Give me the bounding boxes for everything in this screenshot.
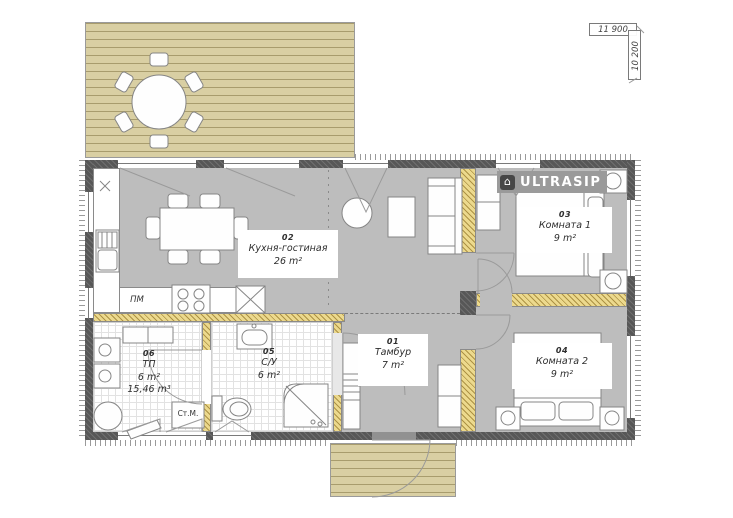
door-opening-tp (202, 350, 211, 404)
terrace-deck (85, 22, 355, 158)
floor-plan-canvas: 11 900 10 200 ⌂ ULTRASIP 02 Кухня-гостин… (0, 0, 733, 518)
window-bottom-tp (118, 432, 206, 440)
room-name: Тамбур (358, 347, 428, 359)
brand-logo: ⌂ ULTRASIP (497, 171, 607, 193)
dishwasher-label: ПМ (120, 295, 154, 305)
house-icon: ⌂ (500, 175, 515, 190)
wall-hatch-right (635, 160, 641, 440)
room-name: С/У (240, 357, 298, 369)
room-label-kitchen-living: 02 Кухня-гостиная 26 m² (238, 230, 338, 278)
door-opening-corridor (460, 253, 476, 291)
entrance-door-opening (372, 432, 416, 440)
door-opening-room1 (480, 293, 512, 307)
window-bottom-bathroom (213, 432, 251, 440)
wall-hatch-bottom-right (456, 440, 635, 446)
room-area: 6 m² (106, 372, 192, 384)
room-volume: 15,46 m³ (106, 384, 192, 396)
kitchen-counter-left (93, 168, 120, 313)
room-name: Комната 1 (518, 220, 612, 232)
room-number: 01 (358, 337, 428, 347)
window-top-1 (118, 160, 196, 168)
dimension-height: 10 200 (628, 30, 641, 80)
room-name: Комната 2 (512, 356, 612, 368)
window-top-3 (343, 160, 388, 168)
washing-machine-label: Ст.М. (172, 409, 204, 418)
window-right-room1 (627, 200, 635, 276)
wall-living-room1 (460, 168, 476, 253)
room-number: 02 (238, 233, 338, 243)
room-number: 03 (518, 210, 612, 220)
wall-pier-corridor (460, 291, 476, 315)
door-opening-bathroom (333, 333, 342, 395)
wall-hatch-bottom-left (85, 440, 330, 446)
window-top-room1 (496, 160, 540, 168)
entrance-porch-deck (330, 443, 456, 497)
room-area: 7 m² (358, 360, 428, 372)
room-label-room1: 03 Комната 1 9 m² (518, 207, 612, 253)
dimension-height-value: 10 200 (629, 31, 642, 81)
room-name: ТП (106, 359, 192, 371)
window-right-room2 (627, 336, 635, 418)
room-area: 6 m² (240, 370, 298, 382)
wall-tambur-room2 (460, 349, 476, 432)
zone-dashed-line (345, 313, 460, 314)
brand-logo-text: ULTRASIP (520, 175, 601, 190)
window-left-1 (85, 192, 93, 232)
room-label-tp: 06 ТП 6 m² 15,46 m³ (106, 349, 192, 413)
room-number: 05 (240, 347, 298, 357)
dishwasher-text: ПМ (130, 295, 144, 305)
room-name: Кухня-гостиная (238, 243, 338, 255)
room-number: 06 (106, 349, 192, 359)
room-label-tambur: 01 Тамбур 7 m² (358, 334, 428, 386)
room-number: 04 (512, 346, 612, 356)
wall-kitchen-bathroom (93, 313, 345, 322)
room-label-room2: 04 Комната 2 9 m² (512, 343, 612, 389)
washing-machine-text: Ст.М. (178, 409, 199, 418)
room-label-bathroom: 05 С/У 6 m² (240, 347, 298, 395)
dimension-width-value: 11 900 (598, 25, 628, 35)
window-left-2 (85, 288, 93, 318)
room-area: 9 m² (512, 369, 612, 381)
window-top-2 (224, 160, 299, 168)
room-area: 9 m² (518, 233, 612, 245)
room-area: 26 m² (238, 256, 338, 268)
door-opening-room2 (460, 315, 476, 349)
